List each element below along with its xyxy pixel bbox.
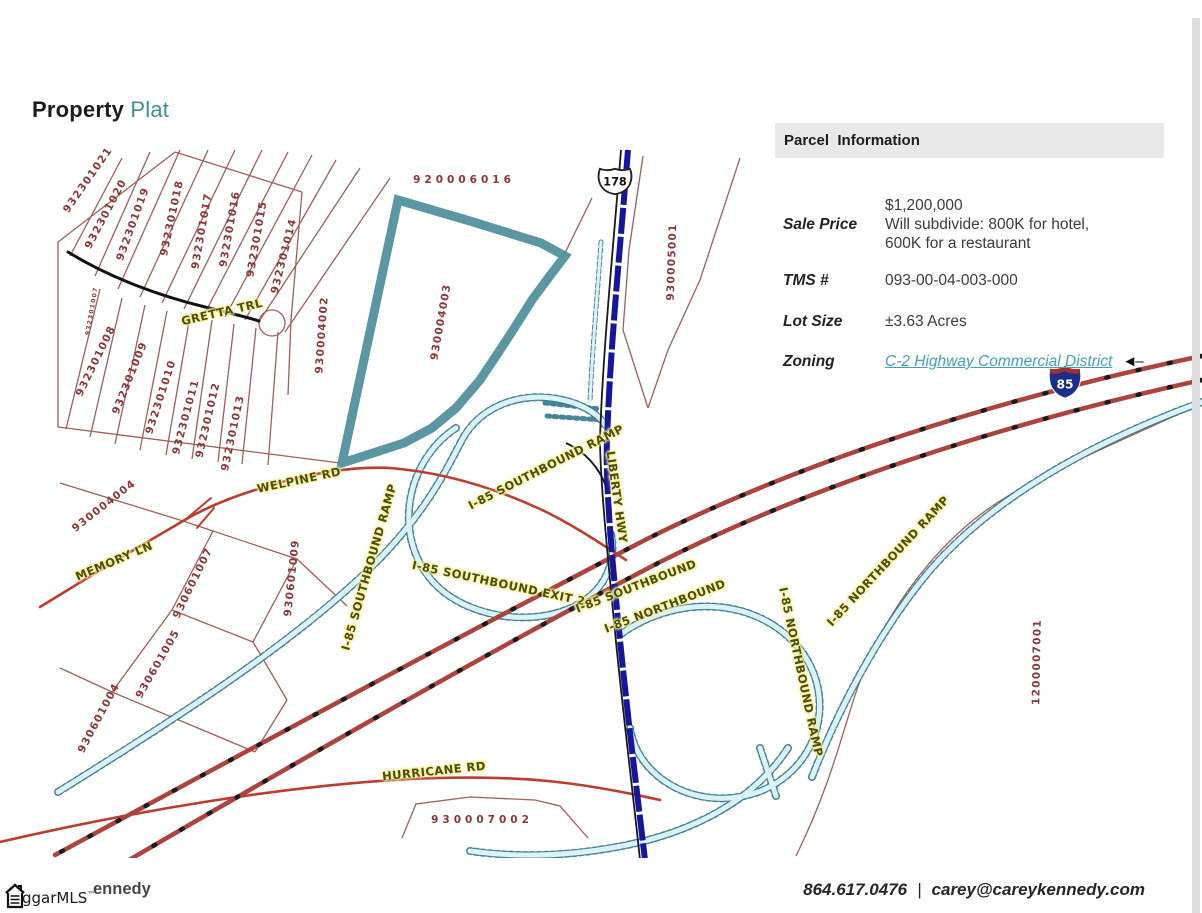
footer-bar: ggarMLS™ ennedy 864.617.0476|carey@carey… xyxy=(0,858,1192,913)
zoning-value: C-2 Highway Commercial District◄– xyxy=(885,353,1142,371)
page-edge-strip xyxy=(1192,18,1200,913)
svg-text:178: 178 xyxy=(603,176,627,189)
us-178-route-shield-icon: 178 xyxy=(596,166,634,201)
subject-parcel-highlight xyxy=(342,200,565,463)
sale-price-label: Sale Price xyxy=(783,216,857,234)
agent-name-partial: ennedy xyxy=(93,880,151,899)
property-plat-page: 9323010219323010209323010199323010189323… xyxy=(0,0,1202,913)
phone-number: 864.617.0476 xyxy=(803,880,907,899)
interstate-85-highway xyxy=(55,356,1202,884)
page-title: Property Plat xyxy=(32,97,169,123)
lot-size-label: Lot Size xyxy=(783,313,842,331)
parcel-information-header: Parcel Information xyxy=(775,123,1164,158)
zoning-label: Zoning xyxy=(783,353,835,371)
parcel-information-panel: Parcel Information Sale Price $1,200,000… xyxy=(775,123,1164,408)
tms-value: 093-00-04-003-000 xyxy=(885,272,1018,290)
mls-logo-text: ggarMLS™ xyxy=(22,889,95,907)
sale-price-value-line2: Will subdivide: 800K for hotel, xyxy=(885,216,1089,234)
contact-separator: | xyxy=(917,880,921,899)
left-arrow-icon: ◄– xyxy=(1122,353,1141,370)
page-title-secondary: Plat xyxy=(130,97,169,122)
contact-info: 864.617.0476|carey@careykennedy.com xyxy=(803,880,1145,900)
lot-size-value: ±3.63 Acres xyxy=(885,313,967,331)
surface-streets xyxy=(0,468,660,842)
sale-price-value-line1: $1,200,000 xyxy=(885,197,963,215)
liberty-hwy-road xyxy=(566,150,645,860)
tms-label: TMS # xyxy=(783,272,829,290)
page-title-primary: Property xyxy=(32,97,124,122)
sale-price-value-line3: 600K for a restaurant xyxy=(885,235,1031,253)
gretta-trl-road xyxy=(68,252,259,321)
parcel-information-body: Sale Price $1,200,000 Will subdivide: 80… xyxy=(775,158,1164,408)
email-address: carey@careykennedy.com xyxy=(932,880,1145,899)
zoning-district-link[interactable]: C-2 Highway Commercial District xyxy=(885,353,1112,370)
